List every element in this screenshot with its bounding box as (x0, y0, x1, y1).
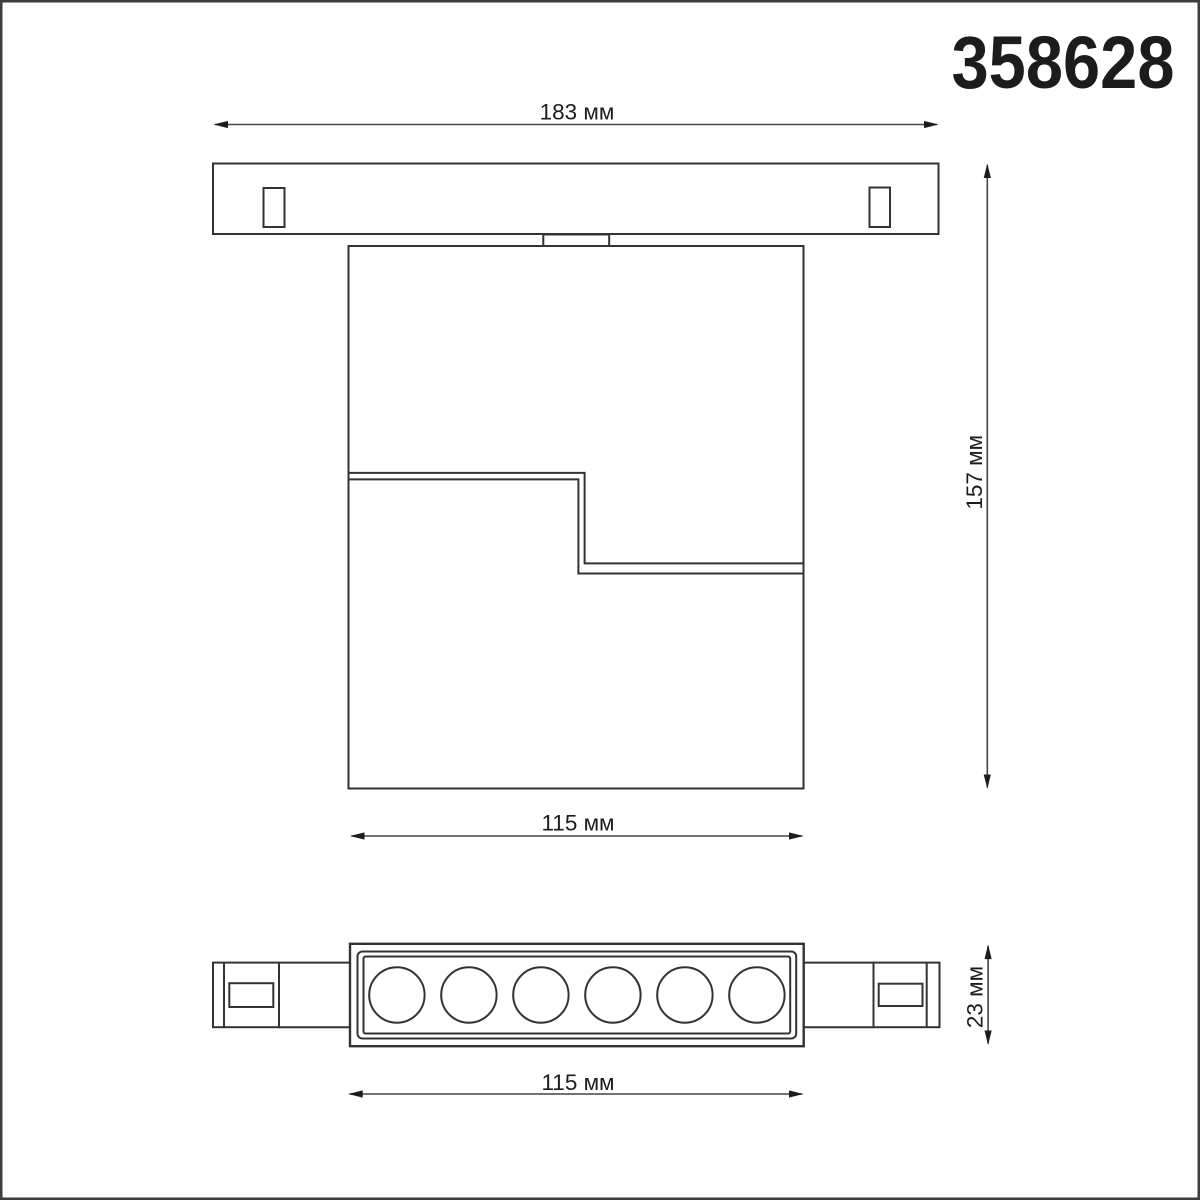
svg-text:115 мм: 115 мм (541, 1070, 614, 1095)
svg-text:157 мм: 157 мм (962, 435, 987, 510)
svg-text:183 мм: 183 мм (540, 100, 615, 125)
svg-text:115 мм: 115 мм (541, 811, 614, 836)
svg-text:23 мм: 23 мм (962, 966, 987, 1028)
svg-text:358628: 358628 (952, 21, 1175, 104)
